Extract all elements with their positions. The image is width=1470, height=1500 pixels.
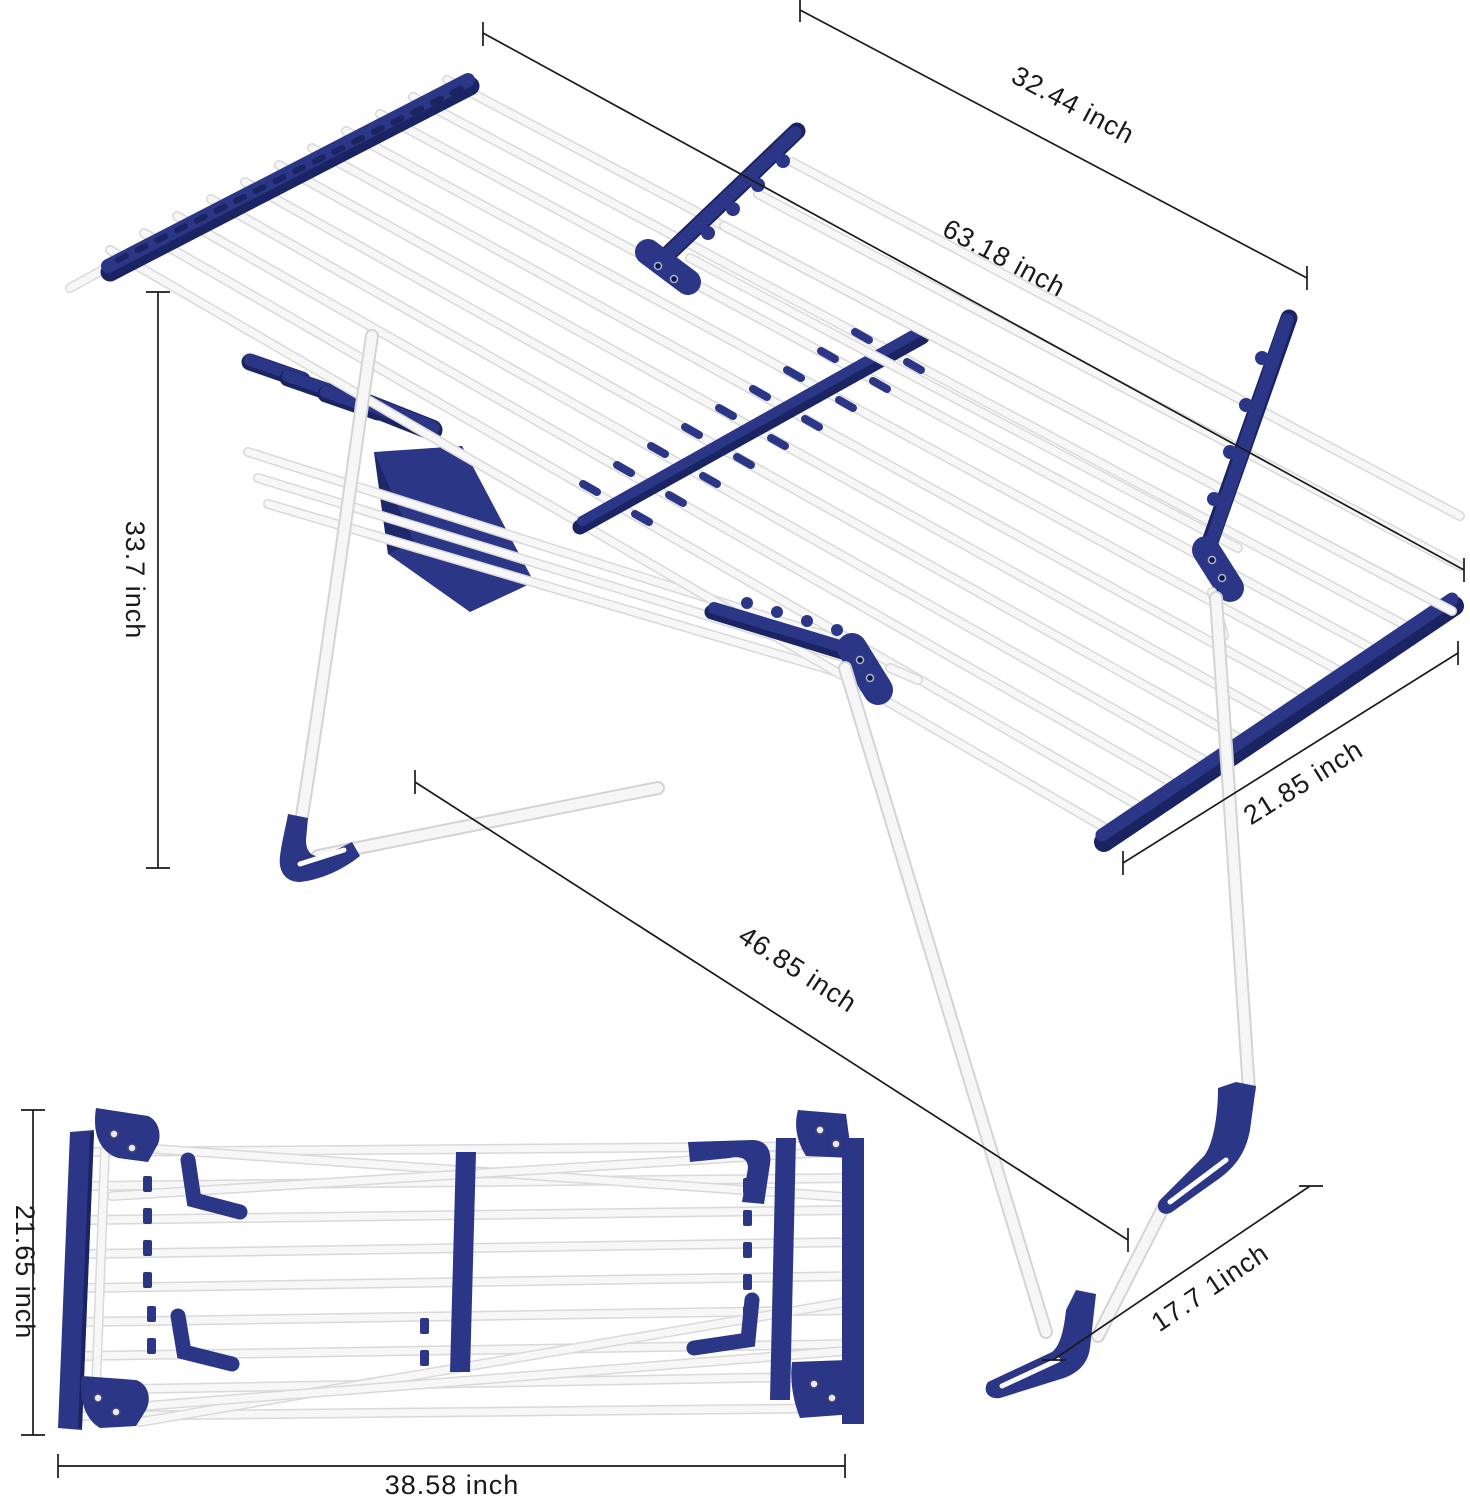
dimension-folded-length: 38.58 inch: [58, 1454, 845, 1500]
floor-bars: [318, 788, 1164, 1336]
wing-arm-right: [1206, 318, 1289, 636]
dimension-label-stand-height: 33.7 inch: [120, 521, 150, 640]
dimension-stand-height: 33.7 inch: [120, 292, 170, 868]
storage-bag: [374, 446, 534, 612]
dimension-wing-width: 32.44 inch: [800, 0, 1307, 290]
top-wing-rods: [690, 162, 1460, 611]
folded-rack-view: [58, 1108, 864, 1430]
dimension-label-total-length: 63.18 inch: [938, 213, 1071, 303]
dimension-folded-width: 21.65 inch: [10, 1110, 45, 1435]
dimension-label-folded-length: 38.58 inch: [385, 1470, 520, 1500]
product-dimension-diagram: 32.44 inch 63.18 inch 33.7 inch 21.85 in…: [0, 0, 1470, 1500]
dimension-label-wing-width: 32.44 inch: [1007, 60, 1140, 150]
expanded-rack-view: [70, 80, 1460, 1398]
dimension-deck-depth: 21.85 inch: [1123, 641, 1458, 875]
left-end-rail: [70, 80, 470, 288]
dimension-label-base-depth: 17.7 1inch: [1146, 1237, 1274, 1337]
dimension-label-base-length: 46.85 inch: [733, 920, 862, 1018]
dimension-label-folded-width: 21.65 inch: [10, 1205, 40, 1340]
